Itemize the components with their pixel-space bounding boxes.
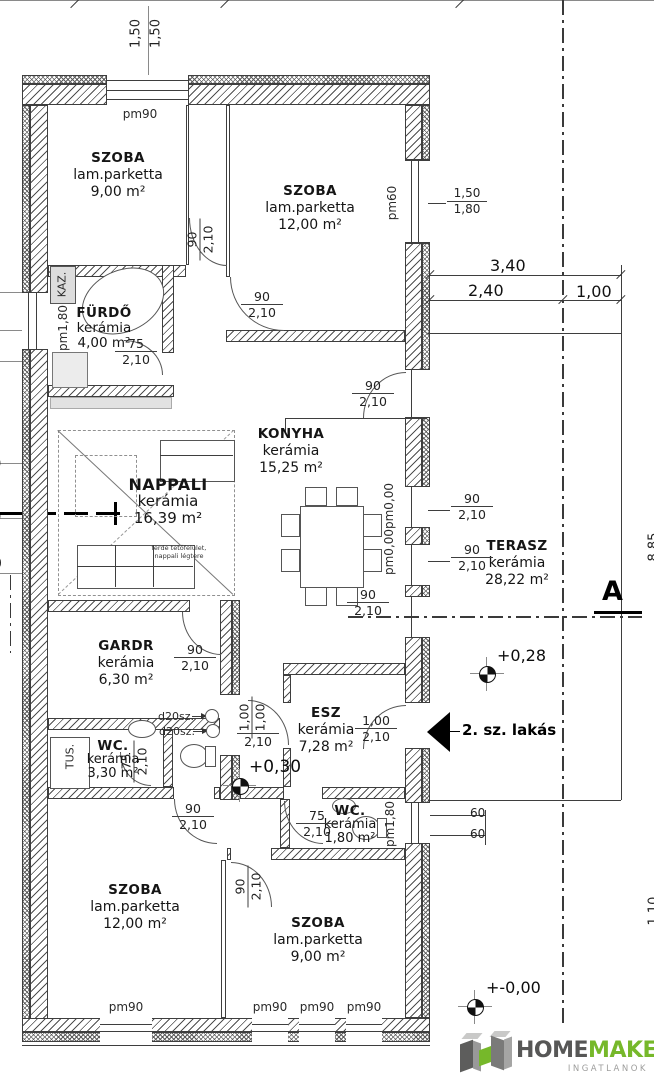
logo-block xyxy=(460,1040,473,1073)
window-line xyxy=(411,160,412,243)
dim-extension-line xyxy=(0,573,22,574)
door-opening xyxy=(405,370,430,417)
footing-line xyxy=(22,1045,430,1046)
insulation-segment xyxy=(22,105,30,1042)
section-marker-underline xyxy=(594,611,642,614)
parapet-label: pm90 xyxy=(297,1000,337,1014)
window-opening xyxy=(252,1018,288,1042)
wall-segment xyxy=(405,527,422,545)
door-label: 90 2,10 xyxy=(185,217,216,263)
level-marker-icon xyxy=(232,778,249,795)
door-leaf xyxy=(411,545,412,585)
door-height: 2,10 xyxy=(134,741,150,783)
door-width: 90 xyxy=(464,491,480,506)
door-label: 90 2,10 xyxy=(449,542,495,573)
room-area: 9,00 m² xyxy=(58,184,178,201)
insulation-segment xyxy=(422,417,430,487)
drain-label: d20sz. xyxy=(159,725,195,738)
homemaker-logo-icon xyxy=(460,1030,514,1076)
top-dimension-line xyxy=(0,0,654,1)
room-area: 12,00 m² xyxy=(250,217,370,234)
wall-segment xyxy=(220,600,232,695)
window-line xyxy=(346,1031,382,1032)
parapet-label: pm90 xyxy=(120,107,160,121)
room-label-szoba-1: SZOBA lam.parketta 9,00 m² xyxy=(58,150,178,201)
parapet-label: pm90 xyxy=(344,1000,384,1014)
roof-edge-strip xyxy=(50,397,172,409)
door-height: 2,10 xyxy=(237,733,279,749)
roof-note: ferde tetőfelület, nappali légtere xyxy=(143,544,215,560)
room-name: NAPPALI xyxy=(108,476,228,493)
kitchen-counter-line xyxy=(285,418,427,419)
wall-segment xyxy=(22,84,430,105)
cabinet-line xyxy=(77,566,193,567)
insulation-segment xyxy=(22,75,430,84)
door-leaf xyxy=(411,370,412,417)
wall-segment xyxy=(226,330,405,342)
dim-tick xyxy=(220,0,229,8)
wall-segment xyxy=(214,787,220,799)
window-fraction: 1,50 1,80 xyxy=(442,186,492,217)
dimension-line xyxy=(430,275,621,276)
level-marker-icon xyxy=(467,999,484,1016)
room-area: 6,30 m² xyxy=(66,672,186,689)
dim-terrace-b: 1,00 xyxy=(576,282,612,301)
door-label: 90 2,10 xyxy=(170,801,216,832)
parapet-label: pm1,80 xyxy=(383,803,397,847)
terrace-edge-right xyxy=(621,265,622,800)
window-line xyxy=(252,1031,288,1032)
door-height: 2,10 xyxy=(115,351,157,367)
insulation-segment xyxy=(422,748,430,803)
dim-extension-line xyxy=(0,292,22,293)
insulation-segment xyxy=(422,585,430,597)
room-label-szoba-bl: SZOBA lam.parketta 12,00 m² xyxy=(75,882,195,933)
door-height: 2,10 xyxy=(248,866,264,908)
clipped-dim-right: 8,85 xyxy=(647,530,654,562)
level-marker-icon xyxy=(479,666,496,683)
step-dim: 60 xyxy=(470,806,485,820)
room-label-konyha: KONYHA kerámia 15,25 m² xyxy=(231,426,351,477)
chair xyxy=(363,514,382,537)
clipped-dim-left: 0 xyxy=(0,457,1,472)
section-line-a xyxy=(348,616,642,618)
room-material: lam.parketta xyxy=(75,899,195,916)
window-line xyxy=(418,803,419,843)
wall-segment xyxy=(405,843,422,1018)
wall-segment xyxy=(405,748,422,803)
insulation-segment xyxy=(422,243,430,370)
wall-segment xyxy=(227,848,231,860)
door-opening xyxy=(405,487,430,527)
entrance-label: 2. sz. lakás xyxy=(462,721,556,739)
room-material: kerámia xyxy=(53,753,173,767)
door-height: 2,10 xyxy=(347,602,389,618)
door-width: 90 xyxy=(360,587,376,602)
clipped-dim-left: 0 xyxy=(0,556,2,572)
insulation-segment xyxy=(422,105,430,160)
door-width: 90 xyxy=(187,642,203,657)
logo-maker: MAKER xyxy=(588,1038,654,1063)
door-height: 2,10 xyxy=(172,816,214,832)
door-label: 90 2,10 xyxy=(233,864,264,910)
door-opening xyxy=(405,545,430,585)
door-label: 75 2,10 xyxy=(113,336,159,367)
wall-segment xyxy=(271,848,405,860)
clipped-dim-right: 1,10 xyxy=(647,894,654,926)
door-width: 1,00 xyxy=(362,713,390,728)
room-material: lam.parketta xyxy=(250,200,370,217)
logo-home: HOME xyxy=(516,1038,588,1063)
dim-extension-line xyxy=(0,330,22,331)
room-area: 16,39 m² xyxy=(108,510,228,527)
chair xyxy=(305,587,327,606)
window-fraction-bottom: 1,80 xyxy=(447,201,488,217)
logo-block xyxy=(491,1036,504,1071)
room-material: lam.parketta xyxy=(258,932,378,949)
door-label: 90 2,10 xyxy=(350,378,396,409)
door-width: 90 xyxy=(185,232,200,248)
room-area: 12,00 m² xyxy=(75,916,195,933)
insulation-segment xyxy=(232,600,240,695)
window-opening xyxy=(100,1018,152,1042)
level-value: +-0,00 xyxy=(486,978,541,997)
drain-circle xyxy=(206,724,220,738)
door-label: 75 2,10 xyxy=(294,808,340,839)
door-width: 1,00 xyxy=(237,704,252,732)
window-jamb xyxy=(188,75,189,105)
sink xyxy=(128,720,156,738)
parapet-label: pm90 xyxy=(250,1000,290,1014)
window-fraction-top: 1,50 xyxy=(454,186,481,201)
wall-segment xyxy=(405,105,422,160)
chair xyxy=(305,487,327,506)
chair xyxy=(281,549,300,572)
window-line xyxy=(106,80,189,81)
room-area: 9,00 m² xyxy=(258,949,378,966)
door-height: 2,10 xyxy=(451,506,493,522)
drain-circle xyxy=(205,709,219,723)
door-label: 90 2,10 xyxy=(172,642,218,673)
room-area: 28,22 m² xyxy=(457,572,577,589)
room-material: kerámia xyxy=(108,493,228,510)
room-label-wc-1: WC. kerámia 3,30 m² xyxy=(53,739,173,781)
door-label: 90 2,10 xyxy=(449,491,495,522)
wall-segment xyxy=(405,417,422,487)
window-line xyxy=(36,292,37,350)
roof-note-line2: nappali légtere xyxy=(143,552,215,560)
room-label-szoba-br: SZOBA lam.parketta 9,00 m² xyxy=(258,915,378,966)
window-jamb xyxy=(405,160,430,161)
door-width: 90 xyxy=(464,542,480,557)
wall-segment xyxy=(48,600,190,612)
insulation-segment xyxy=(422,637,430,703)
room-name: SZOBA xyxy=(258,915,378,932)
window-line xyxy=(106,90,189,91)
parapet-label: pm90 xyxy=(106,1000,146,1014)
section-line-left xyxy=(10,575,11,653)
room-name: SZOBA xyxy=(250,183,370,200)
door-width: 75 xyxy=(119,754,134,770)
window-line xyxy=(299,1024,335,1025)
room-name: SZOBA xyxy=(75,882,195,899)
wall-segment xyxy=(283,663,405,675)
insulation-segment xyxy=(422,527,430,545)
room-material: lam.parketta xyxy=(58,167,178,184)
wall-segment xyxy=(283,675,291,703)
window-line xyxy=(100,1024,152,1025)
level-value: +0,30 xyxy=(249,757,301,777)
window-line xyxy=(100,1031,152,1032)
room-area: 15,25 m² xyxy=(231,460,351,477)
door-height: 2,10 xyxy=(241,304,283,320)
window-line xyxy=(252,1024,288,1025)
door-height: 2,10 xyxy=(352,393,394,409)
logo-block xyxy=(504,1037,512,1070)
wall-segment xyxy=(405,637,422,703)
door-height: 2,10 xyxy=(296,823,338,839)
washer xyxy=(52,352,88,388)
door-height: 2,10 xyxy=(174,657,216,673)
window-opening xyxy=(22,292,48,350)
window-line xyxy=(346,1024,382,1025)
door-width: 75 xyxy=(309,808,325,823)
window-line xyxy=(299,1031,335,1032)
toilet xyxy=(180,744,208,768)
room-label-szoba-2: SZOBA lam.parketta 12,00 m² xyxy=(250,183,370,234)
parapet-label: pm0,00 xyxy=(382,529,396,575)
dim-top-2: 1,50 xyxy=(149,14,164,54)
dim-tick xyxy=(455,0,464,8)
boiler-label: KAZ. xyxy=(56,267,69,303)
wall-segment xyxy=(322,787,405,799)
room-label-gardr: GARDR kerámia 6,30 m² xyxy=(66,638,186,689)
door-leaf xyxy=(411,487,412,527)
dining-table xyxy=(300,506,364,588)
logo: HOMEMAKER INGATLANOK xyxy=(452,1024,654,1081)
window-jamb xyxy=(22,349,48,350)
window-line xyxy=(106,99,189,100)
room-name: KONYHA xyxy=(231,426,351,443)
window-line xyxy=(418,160,419,243)
terrace-edge xyxy=(428,800,621,801)
dim-tick xyxy=(70,0,79,8)
door-width: 90 xyxy=(233,879,248,895)
window-line xyxy=(28,292,29,350)
door-height: 2,10 xyxy=(355,728,397,744)
fraction-extension xyxy=(428,203,446,204)
wall-segment xyxy=(162,265,174,353)
level-value: +0,28 xyxy=(497,646,546,665)
logo-block xyxy=(461,1033,482,1039)
fraction-extension xyxy=(428,510,450,511)
terrace-edge xyxy=(428,333,622,334)
dim-extension-line xyxy=(0,361,22,362)
room-material: kerámia xyxy=(231,443,351,460)
door-width: 90 xyxy=(365,378,381,393)
partition-wall xyxy=(221,860,226,1018)
drain-label: d20sz. xyxy=(158,710,194,723)
door-label: 1,00 2,10 xyxy=(353,713,399,744)
chair xyxy=(281,514,300,537)
parapet-label: pm1,80 xyxy=(56,307,70,351)
window-jamb xyxy=(106,75,107,105)
toilet-tank xyxy=(205,746,216,767)
entrance-arrow-icon xyxy=(427,712,450,752)
window-line xyxy=(411,803,412,843)
room-label-nappali: NAPPALI kerámia 16,39 m² xyxy=(108,476,228,527)
logo-tagline: INGATLANOK xyxy=(516,1064,648,1074)
entrance-line xyxy=(450,731,460,732)
insulation-segment xyxy=(422,843,430,1018)
door-label: 90 2,10 xyxy=(239,289,285,320)
section-marker: A xyxy=(602,576,623,607)
chair xyxy=(363,549,382,572)
dim-terrace-total: 3,40 xyxy=(490,256,526,275)
room-material: kerámia xyxy=(66,655,186,672)
wall-segment xyxy=(405,243,422,370)
step-dim: 60 xyxy=(470,827,485,841)
window-opening xyxy=(346,1018,382,1042)
parapet-label: pm0,00 xyxy=(382,483,396,529)
door-label: 2,10 xyxy=(236,733,280,749)
window-jamb xyxy=(22,292,48,293)
door-width: 75 xyxy=(128,336,144,351)
roof-note-line1: ferde tetőfelület, xyxy=(143,544,215,552)
door-height: 2,10 xyxy=(451,557,493,573)
chair xyxy=(336,487,358,506)
dim-terrace-a: 2,40 xyxy=(468,281,504,300)
dim-top-1: 1,50 xyxy=(129,14,144,54)
wall-segment xyxy=(30,105,48,1042)
door-height: 2,10 xyxy=(200,219,216,261)
wall-segment xyxy=(220,755,232,800)
door-label: 75 2,10 xyxy=(119,739,150,785)
door-width: 90 xyxy=(254,289,270,304)
floor-plan: 1,50 1,50 0 0 0 8,85 1,10 xyxy=(0,0,654,1081)
room-name: WC. xyxy=(53,739,173,753)
fraction-extension xyxy=(428,561,450,562)
window-opening xyxy=(299,1018,335,1042)
parapet-label: pm60 xyxy=(385,185,399,221)
door-width: 90 xyxy=(185,801,201,816)
room-name: GARDR xyxy=(66,638,186,655)
room-area: 3,30 m² xyxy=(53,767,173,781)
sofa-line xyxy=(160,455,233,456)
door-label: 90 2,10 xyxy=(345,587,391,618)
logo-wordmark: HOMEMAKER xyxy=(516,1038,654,1063)
wall-segment xyxy=(405,585,422,597)
room-name: SZOBA xyxy=(58,150,178,167)
